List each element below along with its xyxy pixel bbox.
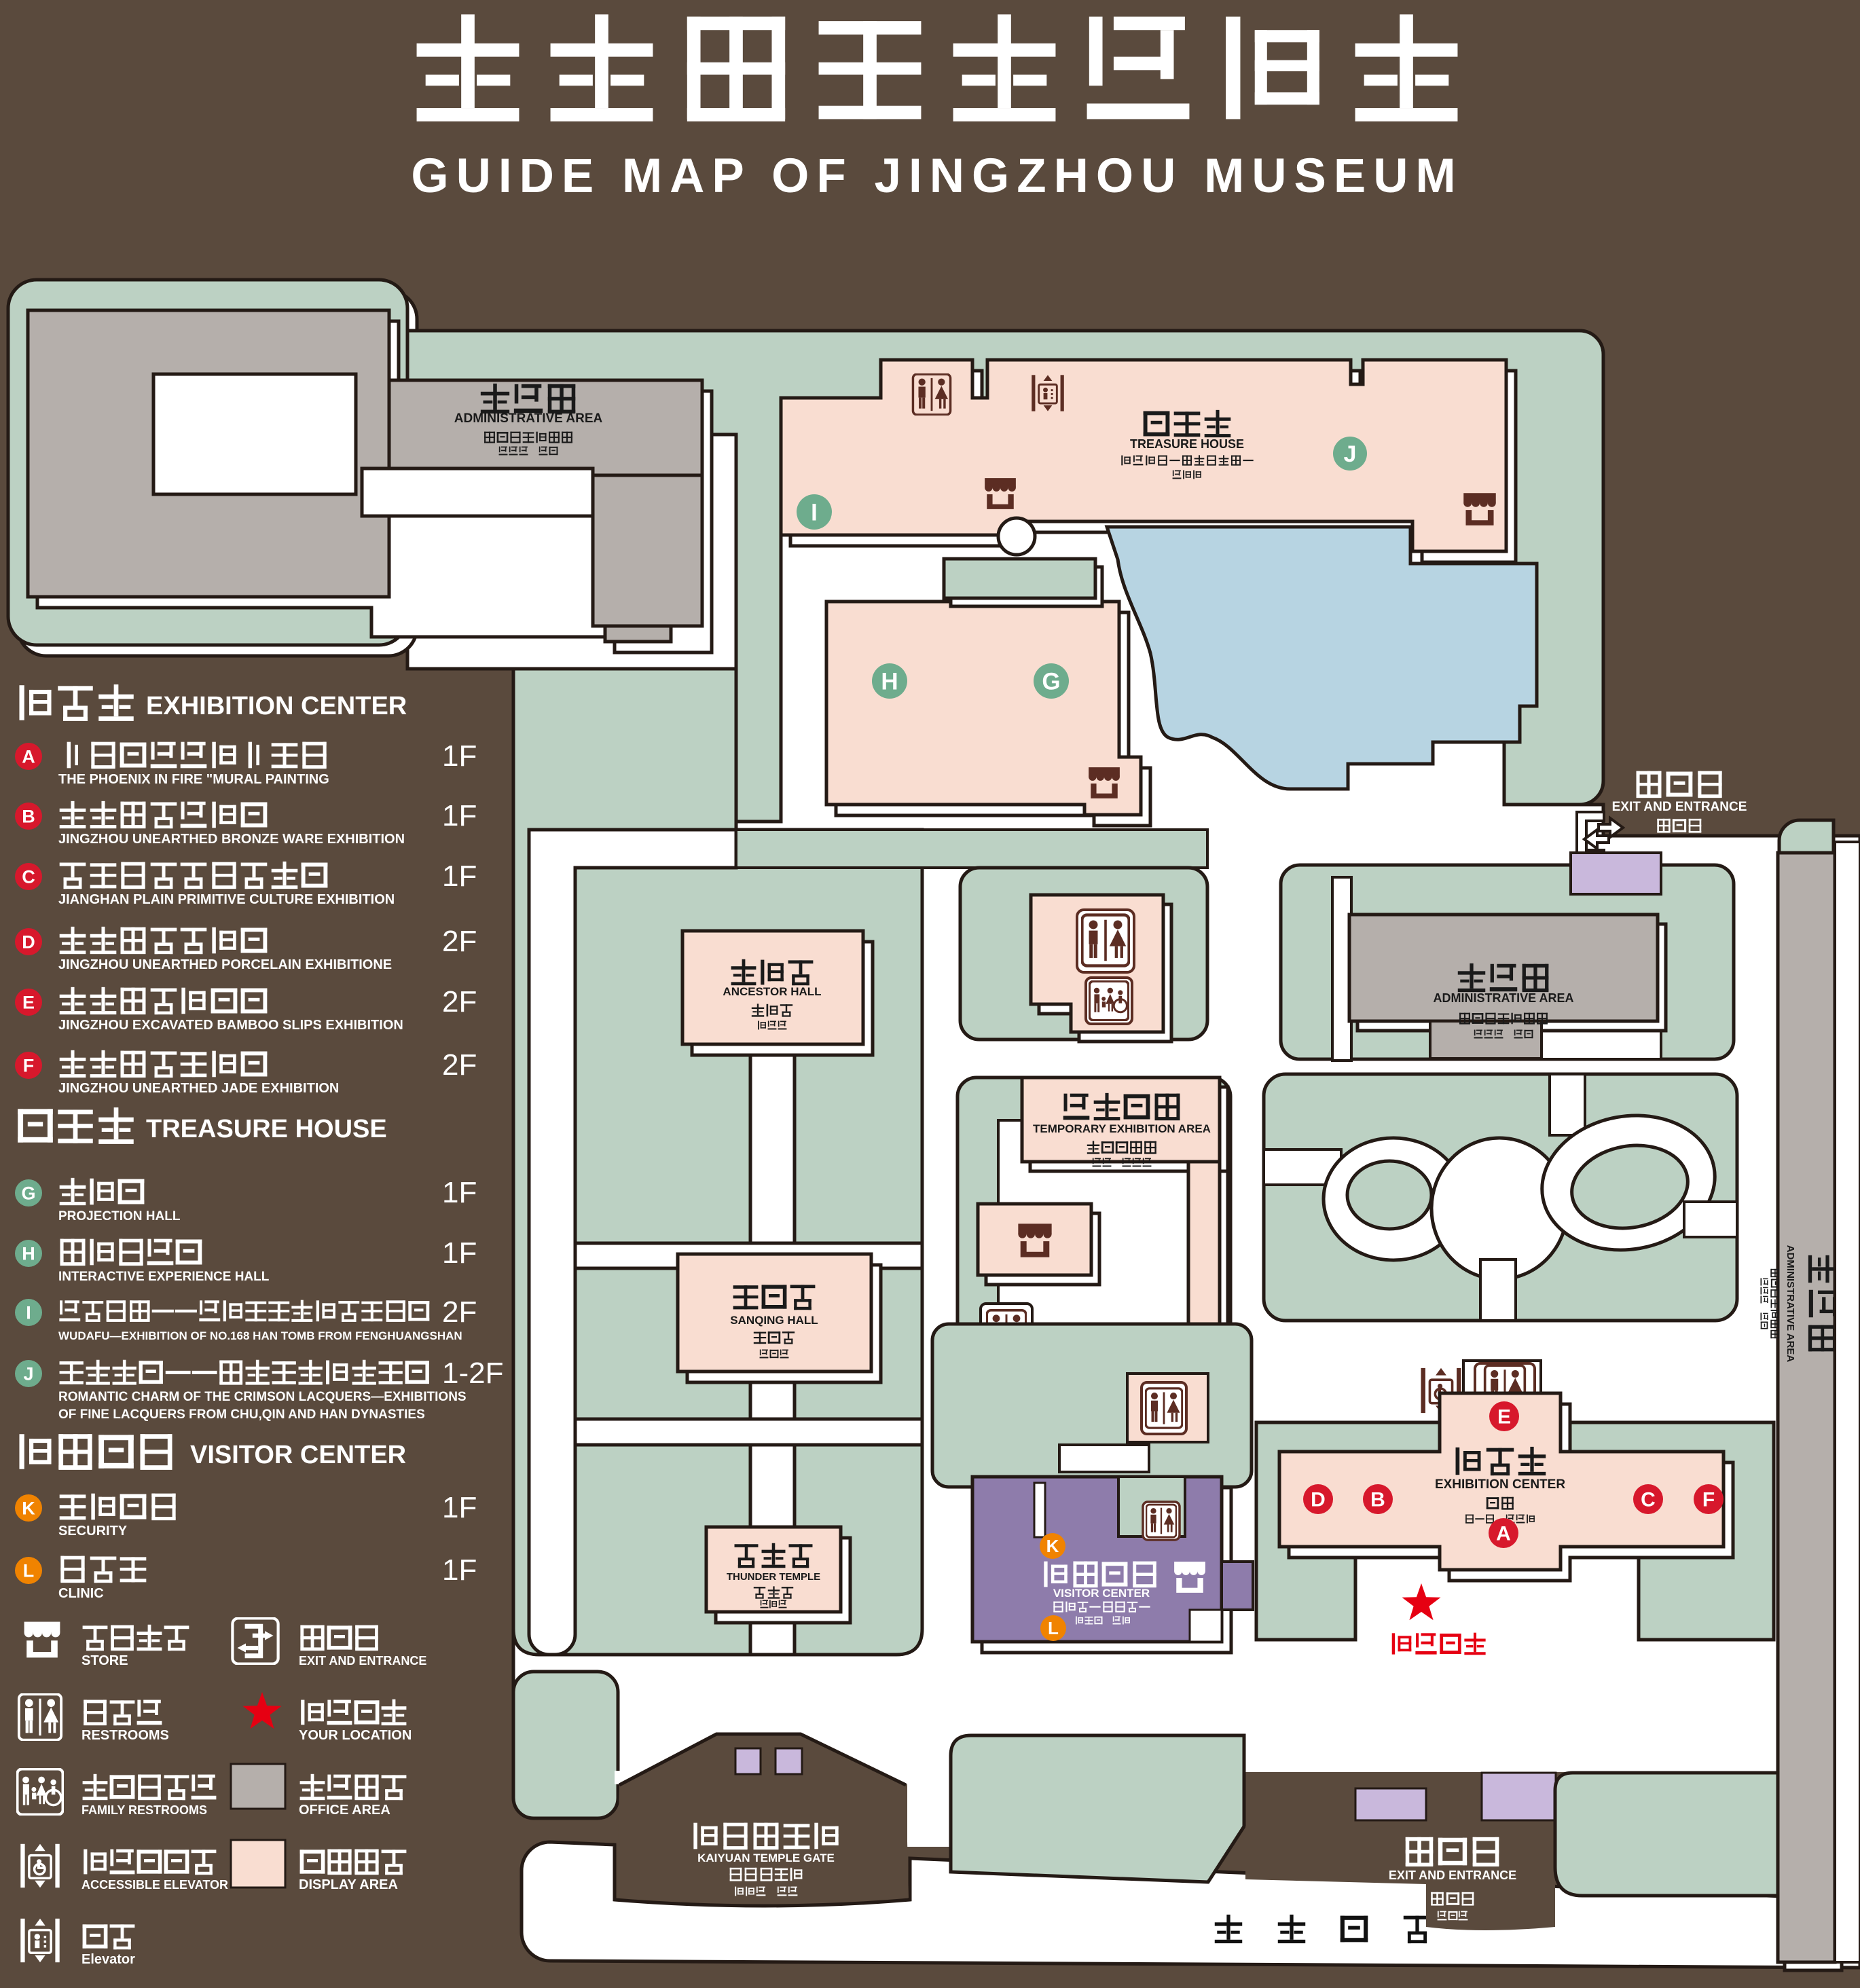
svg-text:C: C [22,867,35,887]
svg-text:JIANGHAN PLAIN PRIMITIVE CULTU: JIANGHAN PLAIN PRIMITIVE CULTURE EXHIBIT… [58,892,395,907]
svg-text:J: J [1344,441,1357,467]
svg-text:I: I [811,499,818,526]
svg-text:F: F [1702,1489,1715,1511]
svg-text:EXIT AND ENTRANCE: EXIT AND ENTRANCE [1389,1869,1516,1882]
svg-text:WUDAFU—EXHIBITION OF NO.168 HA: WUDAFU—EXHIBITION OF NO.168 HAN TOMB FRO… [58,1329,462,1342]
svg-text:K: K [22,1498,35,1519]
svg-text:EXIT AND ENTRANCE: EXIT AND ENTRANCE [1612,800,1747,814]
svg-text:EXHIBITION CENTER: EXHIBITION CENTER [1435,1477,1565,1492]
svg-text:G: G [1042,668,1060,695]
svg-text:H: H [22,1244,35,1264]
svg-text:SANQING HALL: SANQING HALL [730,1314,818,1327]
svg-text:B: B [22,807,35,827]
svg-text:TREASURE HOUSE: TREASURE HOUSE [146,1115,387,1143]
svg-text:DISPLAY AREA: DISPLAY AREA [299,1877,398,1892]
svg-text:EXHIBITION CENTER: EXHIBITION CENTER [146,692,407,720]
svg-text:2F: 2F [442,1048,477,1082]
svg-text:OFFICE AREA: OFFICE AREA [299,1803,390,1818]
svg-text:VISITOR CENTER: VISITOR CENTER [1053,1587,1150,1600]
svg-text:I: I [26,1303,31,1323]
svg-text:1F: 1F [442,1176,477,1209]
svg-text:L: L [23,1561,35,1581]
svg-text:2F: 2F [442,985,477,1018]
svg-text:ACCESSIBLE ELEVATOR: ACCESSIBLE ELEVATOR [81,1878,228,1892]
svg-text:ANCESTOR HALL: ANCESTOR HALL [723,985,821,998]
svg-text:THE PHOENIX IN FIRE "MURAL PAI: THE PHOENIX IN FIRE "MURAL PAINTING [58,772,329,787]
svg-text:A: A [1496,1523,1511,1545]
svg-text:E: E [22,993,35,1013]
svg-text:ROMANTIC CHARM OF THE CRIMSON: ROMANTIC CHARM OF THE CRIMSON LACQUERS—E… [58,1390,467,1404]
svg-text:1F: 1F [442,1236,477,1270]
svg-text:JINGZHOU UNEARTHED BRONZE WARE: JINGZHOU UNEARTHED BRONZE WARE EXHIBITIO… [58,832,405,847]
svg-text:TEMPORARY EXHIBITION AREA: TEMPORARY EXHIBITION AREA [1033,1122,1211,1135]
svg-text:F: F [23,1056,35,1076]
svg-text:Elevator: Elevator [81,1952,135,1967]
svg-text:1F: 1F [442,739,477,773]
svg-text:EXIT AND ENTRANCE: EXIT AND ENTRANCE [299,1654,426,1668]
svg-text:2F: 2F [442,925,477,958]
svg-text:PROJECTION HALL: PROJECTION HALL [58,1209,181,1223]
svg-text:H: H [881,668,898,695]
svg-text:RESTROOMS: RESTROOMS [81,1728,169,1743]
svg-text:C: C [1641,1489,1656,1511]
svg-text:STORE: STORE [81,1653,128,1668]
svg-text:D: D [1311,1489,1326,1511]
svg-text:B: B [1370,1489,1385,1511]
svg-text:THUNDER TEMPLE: THUNDER TEMPLE [727,1571,820,1583]
svg-text:D: D [22,932,35,953]
svg-text:L: L [1048,1618,1059,1638]
svg-text:SECURITY: SECURITY [58,1524,128,1539]
svg-text:GUIDE MAP OF JINGZHOU MUSEUM: GUIDE MAP OF JINGZHOU MUSEUM [411,149,1463,203]
svg-text:ADMINISTRATIVE AREA: ADMINISTRATIVE AREA [454,411,603,426]
svg-text:E: E [1497,1406,1511,1429]
svg-text:VISITOR CENTER: VISITOR CENTER [190,1441,406,1469]
svg-text:YOUR LOCATION: YOUR LOCATION [299,1728,412,1743]
svg-text:1F: 1F [442,860,477,893]
svg-text:CLINIC: CLINIC [58,1586,104,1601]
svg-text:JINGZHOU EXCAVATED BAMBOO SLIP: JINGZHOU EXCAVATED BAMBOO SLIPS EXHIBITI… [58,1018,403,1033]
svg-text:G: G [21,1183,35,1204]
svg-text:ADMINISTRATIVE AREA: ADMINISTRATIVE AREA [1434,991,1574,1005]
svg-text:1F: 1F [442,1491,477,1524]
svg-text:1F: 1F [442,1553,477,1587]
svg-text:INTERACTIVE EXPERIENCE HALL: INTERACTIVE EXPERIENCE HALL [58,1270,270,1284]
svg-text:A: A [22,747,35,767]
svg-text:OF FINE LACQUERS FROM CHU,QIN: OF FINE LACQUERS FROM CHU,QIN AND HAN DY… [58,1407,425,1422]
svg-text:J: J [23,1364,33,1384]
svg-text:TREASURE HOUSE: TREASURE HOUSE [1130,437,1244,451]
svg-text:JINGZHOU UNEARTHED JADE EXHIBI: JINGZHOU UNEARTHED JADE EXHIBITION [58,1081,339,1096]
svg-text:2F: 2F [442,1295,477,1329]
svg-text:JINGZHOU UNEARTHED PORCELAIN E: JINGZHOU UNEARTHED PORCELAIN EXHIBITIONE [58,957,392,972]
svg-text:FAMILY RESTROOMS: FAMILY RESTROOMS [81,1803,207,1817]
svg-text:ADMINISTRATIVE AREA: ADMINISTRATIVE AREA [1785,1245,1796,1363]
svg-text:KAIYUAN TEMPLE GATE: KAIYUAN TEMPLE GATE [697,1852,835,1864]
svg-text:K: K [1046,1536,1059,1556]
svg-text:1-2F: 1-2F [442,1357,503,1390]
svg-text:1F: 1F [442,799,477,832]
